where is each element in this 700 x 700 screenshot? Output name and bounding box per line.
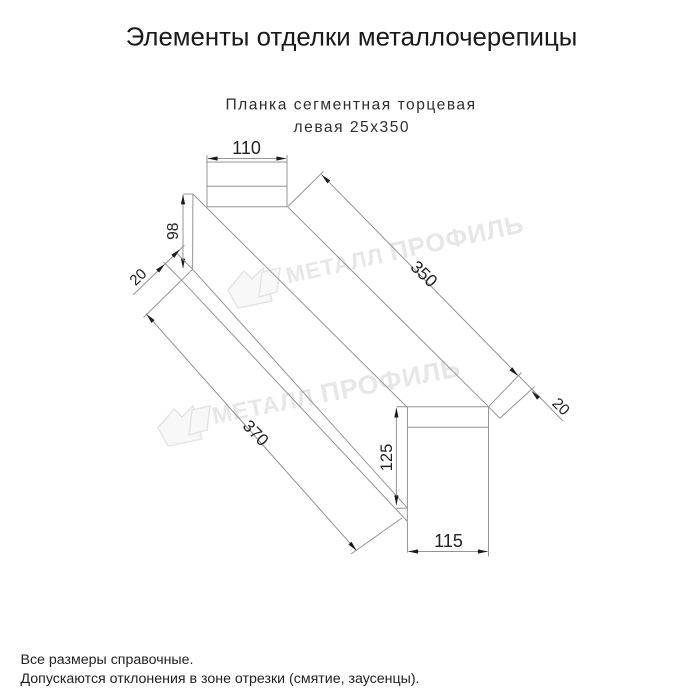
- svg-text:Допускаются отклонения в зоне: Допускаются отклонения в зоне отрезки (с…: [21, 671, 420, 687]
- svg-text:Элементы отделки металлочерепи: Элементы отделки металлочерепицы: [126, 23, 578, 51]
- svg-text:20: 20: [548, 395, 572, 419]
- svg-text:МЕТАЛЛ ПРОФИЛЬ: МЕТАЛЛ ПРОФИЛЬ: [283, 210, 526, 289]
- svg-text:Все размеры справочные.: Все размеры справочные.: [21, 652, 194, 668]
- svg-text:Планка сегментная торцевая: Планка сегментная торцевая: [225, 97, 476, 114]
- svg-text:115: 115: [434, 531, 463, 551]
- svg-text:125: 125: [378, 444, 396, 472]
- svg-text:левая 25х350: левая 25х350: [294, 119, 411, 136]
- svg-text:110: 110: [232, 138, 261, 158]
- svg-text:20: 20: [126, 265, 150, 289]
- svg-text:МЕТАЛЛ ПРОФИЛЬ: МЕТАЛЛ ПРОФИЛЬ: [209, 352, 462, 430]
- svg-text:98: 98: [165, 223, 182, 240]
